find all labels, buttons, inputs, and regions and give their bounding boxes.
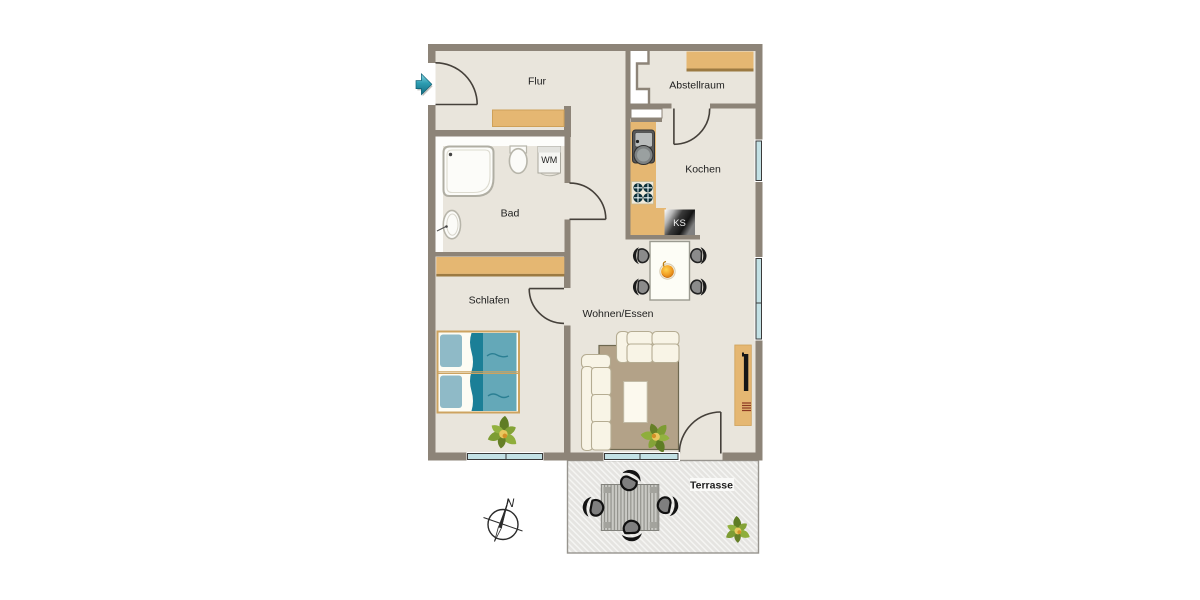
svg-text:Wohnen/Essen: Wohnen/Essen (582, 308, 653, 320)
svg-text:Kochen: Kochen (685, 164, 721, 176)
svg-text:N: N (506, 496, 515, 510)
svg-text:Schlafen: Schlafen (469, 295, 510, 307)
svg-text:KS: KS (673, 218, 686, 229)
svg-text:Abstellraum: Abstellraum (669, 80, 725, 92)
svg-text:Bad: Bad (501, 208, 520, 220)
svg-text:Flur: Flur (528, 76, 547, 88)
svg-text:Terrasse: Terrasse (690, 480, 733, 492)
svg-text:WM: WM (541, 155, 557, 165)
